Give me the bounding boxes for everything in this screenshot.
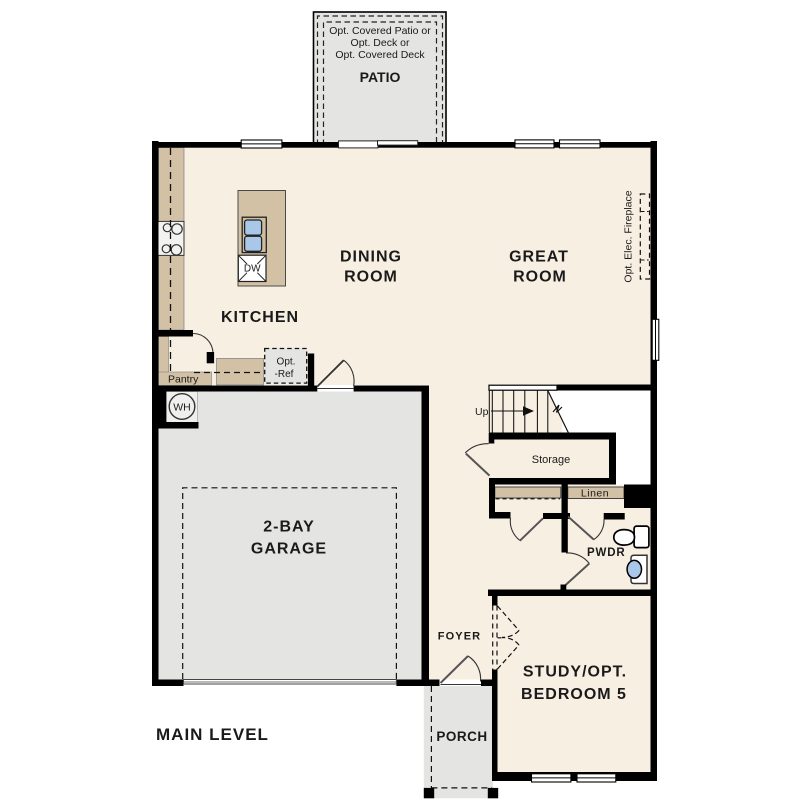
svg-text:Opt.: Opt. [277,357,296,368]
svg-text:PORCH: PORCH [436,729,487,744]
svg-text:Opt. Covered Patio or: Opt. Covered Patio or [329,25,431,37]
svg-text:WH: WH [173,402,191,414]
svg-text:BEDROOM 5: BEDROOM 5 [521,686,627,703]
svg-text:Opt. Deck or: Opt. Deck or [351,37,410,49]
svg-text:GARAGE: GARAGE [251,541,327,558]
svg-text:GREAT: GREAT [509,249,569,266]
svg-text:DINING: DINING [340,249,402,266]
svg-text:-Ref: -Ref [275,369,294,380]
svg-text:KITCHEN: KITCHEN [221,309,299,326]
svg-text:Linen: Linen [581,488,609,500]
svg-text:Up: Up [475,406,489,418]
svg-text:Storage: Storage [532,454,571,466]
svg-text:2-BAY: 2-BAY [263,519,315,536]
svg-text:PATIO: PATIO [360,69,401,85]
svg-text:Opt. Elec. Fireplace: Opt. Elec. Fireplace [623,190,635,282]
svg-text:PWDR: PWDR [587,547,626,559]
svg-text:Pantry: Pantry [168,374,199,386]
svg-text:FOYER: FOYER [438,631,481,643]
svg-text:ROOM: ROOM [344,269,398,286]
svg-text:ROOM: ROOM [513,269,567,286]
svg-text:DW: DW [244,264,261,275]
svg-text:Opt. Covered Deck: Opt. Covered Deck [335,49,425,61]
svg-text:MAIN LEVEL: MAIN LEVEL [156,725,269,744]
svg-text:STUDY/OPT.: STUDY/OPT. [523,664,627,681]
